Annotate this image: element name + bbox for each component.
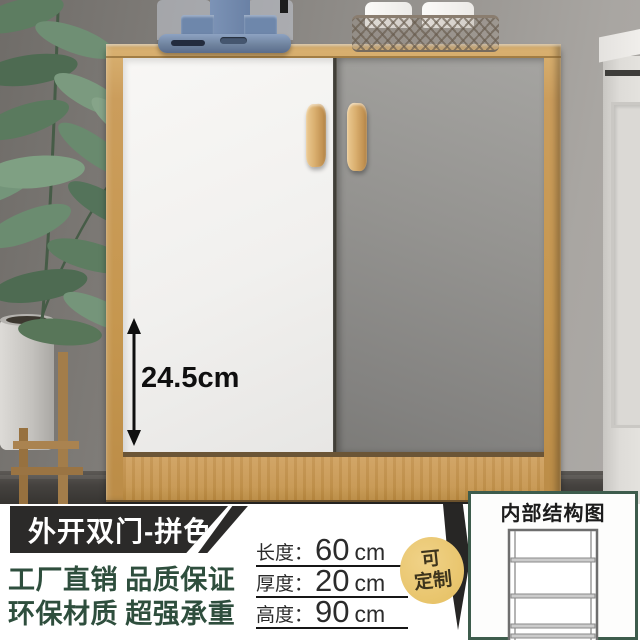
cabinet-door-gray (337, 58, 544, 452)
side-furniture-door-panel (611, 102, 640, 428)
banner-label: 外开双门-拼色 (28, 510, 212, 550)
badge-line-1: 可 (420, 548, 441, 572)
dimension-value: 90 (315, 596, 349, 627)
dimension-unit: cm (355, 541, 386, 565)
dimension-table: 长度： 60 cm 厚度： 20 cm 高度： 90 cm (256, 537, 408, 630)
appliance-base (158, 34, 291, 53)
product-photo-canvas: 24.5cm 外开双门-拼色 工厂直销 品质保证 环保材质 超强承重 长度： 6… (0, 0, 640, 640)
wood-handle-left (306, 104, 326, 168)
blue-appliance (157, 0, 293, 53)
basket-weave (352, 15, 499, 52)
badge-line-2: 定制 (413, 569, 453, 595)
appliance-vent-slot (171, 40, 205, 46)
shoe-cabinet (106, 44, 561, 502)
appliance-handle-stub (280, 0, 288, 13)
dimension-value: 60 (315, 534, 349, 565)
internal-structure-panel: 内部结构图 (468, 491, 638, 640)
dimension-unit: cm (355, 572, 386, 596)
selling-point-2: 环保材质 超强承重 (8, 592, 235, 631)
dimension-value: 20 (315, 565, 349, 596)
dimension-label: 高度： (256, 606, 313, 627)
dimension-label: 厚度： (256, 575, 313, 596)
dimension-unit: cm (355, 603, 386, 627)
height-measurement-label: 24.5cm (141, 362, 239, 395)
dimension-label: 长度： (256, 544, 313, 565)
appliance-button-slot (220, 37, 247, 44)
dimension-row-height: 高度： 90 cm (256, 599, 408, 629)
side-furniture (599, 26, 640, 506)
shelf-diagram (507, 528, 599, 640)
wire-basket (352, 2, 499, 52)
wood-handle-right (347, 103, 367, 172)
side-furniture-groove (605, 70, 640, 76)
structure-panel-title: 内部结构图 (471, 497, 635, 526)
